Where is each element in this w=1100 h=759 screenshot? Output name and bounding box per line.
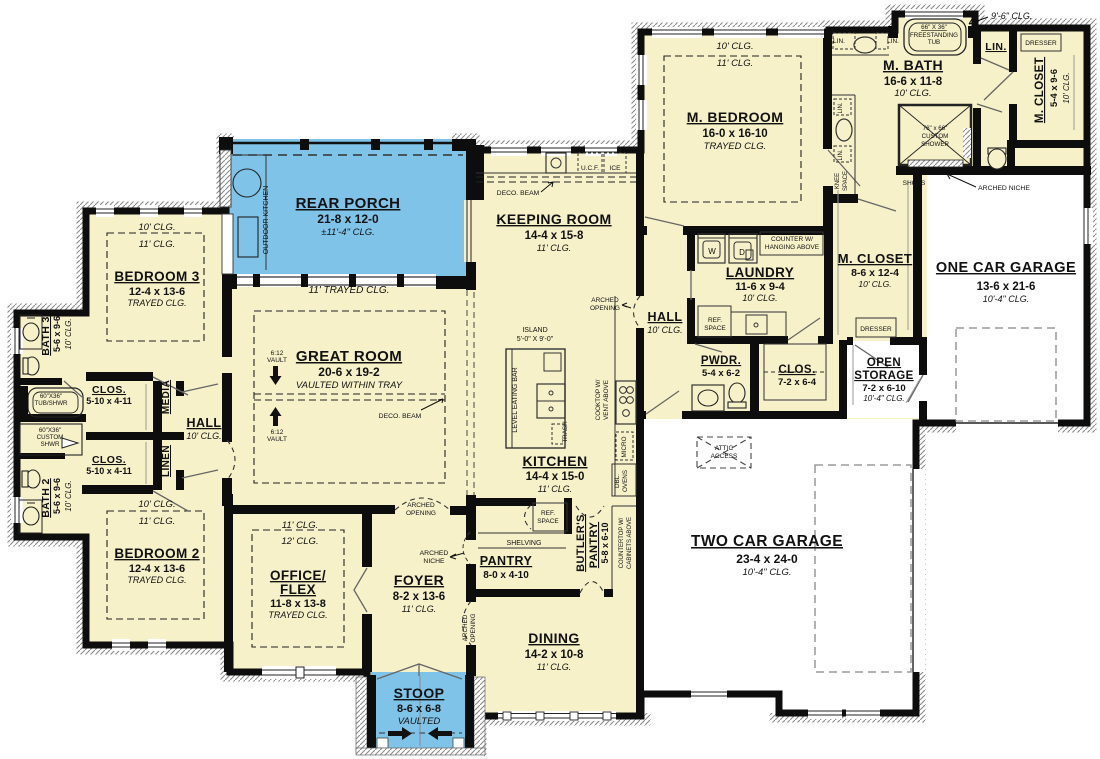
svg-text:14-4 x 15-0: 14-4 x 15-0: [526, 471, 585, 483]
svg-text:SHOWER: SHOWER: [921, 141, 949, 148]
svg-text:11' TRAYED CLG.: 11' TRAYED CLG.: [308, 285, 389, 296]
svg-text:MICRO: MICRO: [621, 436, 628, 457]
svg-text:DBL.: DBL.: [614, 474, 621, 488]
svg-text:6:12: 6:12: [271, 350, 284, 357]
svg-text:60"X36": 60"X36": [40, 393, 62, 400]
svg-text:12-4 x 13-6: 12-4 x 13-6: [129, 563, 185, 575]
svg-text:CUSTOM: CUSTOM: [922, 133, 949, 140]
svg-text:14-4 x 15-8: 14-4 x 15-8: [525, 230, 584, 242]
svg-text:OPEN: OPEN: [867, 357, 901, 369]
svg-text:66" X 36": 66" X 36": [921, 24, 947, 31]
svg-text:8-6 x 6-8: 8-6 x 6-8: [397, 703, 441, 715]
svg-text:KEEPING ROOM: KEEPING ROOM: [496, 211, 611, 227]
svg-text:SHOES: SHOES: [903, 180, 926, 187]
svg-text:7-2 x 6-4: 7-2 x 6-4: [778, 377, 817, 388]
svg-text:ACCESS: ACCESS: [711, 453, 738, 460]
svg-text:CLOS.: CLOS.: [92, 454, 126, 466]
svg-text:5-6 x 9-6: 5-6 x 9-6: [52, 316, 62, 352]
svg-text:5-4 x 6-2: 5-4 x 6-2: [702, 368, 740, 379]
svg-text:HANGING ABOVE: HANGING ABOVE: [765, 244, 820, 251]
svg-text:SPACE: SPACE: [537, 518, 559, 525]
svg-text:DINING: DINING: [528, 630, 579, 646]
svg-text:BATH 2: BATH 2: [40, 478, 52, 518]
svg-text:21-8 x 12-0: 21-8 x 12-0: [317, 212, 379, 226]
svg-text:SPACE: SPACE: [704, 325, 726, 332]
svg-text:8-6 x 12-4: 8-6 x 12-4: [851, 267, 899, 279]
svg-text:LIN.: LIN.: [838, 102, 844, 113]
svg-text:SHELVING: SHELVING: [507, 540, 542, 547]
svg-text:REF.: REF.: [541, 510, 555, 517]
svg-text:ARCHED: ARCHED: [420, 550, 449, 557]
svg-text:14-2 x 10-8: 14-2 x 10-8: [525, 649, 584, 661]
svg-text:10'-4" CLG.: 10'-4" CLG.: [983, 294, 1029, 304]
svg-text:LAUNDRY: LAUNDRY: [726, 265, 794, 280]
svg-text:8-2 x 13-6: 8-2 x 13-6: [393, 591, 445, 603]
svg-text:10' CLG.: 10' CLG.: [138, 499, 175, 510]
svg-text:VAULTED WITHIN TRAY: VAULTED WITHIN TRAY: [296, 380, 403, 391]
svg-text:CUSTOM: CUSTOM: [37, 434, 64, 441]
svg-text:9'-6" CLG.: 9'-6" CLG.: [991, 11, 1032, 21]
svg-text:COUNTERTOP W/: COUNTERTOP W/: [619, 517, 625, 568]
svg-text:BEDROOM 2: BEDROOM 2: [114, 546, 199, 561]
svg-text:SPACE: SPACE: [843, 171, 849, 191]
svg-text:NICHE: NICHE: [423, 558, 445, 565]
svg-text:D: D: [739, 248, 745, 257]
svg-text:LIN.: LIN.: [985, 41, 1006, 53]
svg-text:REF.: REF.: [708, 317, 722, 324]
svg-text:REAR PORCH: REAR PORCH: [296, 195, 401, 212]
svg-text:11' CLG.: 11' CLG.: [139, 516, 176, 527]
svg-text:KNEE: KNEE: [835, 173, 841, 189]
svg-text:23-4 x 24-0: 23-4 x 24-0: [736, 552, 798, 566]
svg-text:5-10 x 4-11: 5-10 x 4-11: [86, 396, 132, 406]
svg-text:LIN.: LIN.: [887, 38, 899, 45]
svg-text:11' CLG.: 11' CLG.: [139, 239, 176, 250]
svg-text:76" x 66": 76" x 66": [923, 125, 948, 132]
svg-text:SHWR: SHWR: [41, 441, 60, 448]
svg-text:11-6 x 9-4: 11-6 x 9-4: [735, 281, 785, 293]
svg-text:LIN.: LIN.: [838, 149, 844, 160]
svg-text:TRASH: TRASH: [562, 421, 569, 443]
svg-text:TRAYED CLG.: TRAYED CLG.: [268, 610, 327, 620]
svg-text:FREESTANDING: FREESTANDING: [910, 32, 958, 39]
svg-text:20-6 x 19-2: 20-6 x 19-2: [318, 365, 380, 379]
svg-text:PANTRY: PANTRY: [480, 554, 533, 568]
svg-text:PWDR.: PWDR.: [701, 355, 741, 367]
svg-text:10'-4" CLG.: 10'-4" CLG.: [863, 394, 904, 403]
svg-text:MEDIA: MEDIA: [161, 380, 172, 414]
svg-text:FLEX: FLEX: [280, 582, 316, 597]
svg-text:U.C.F.: U.C.F.: [581, 165, 599, 172]
svg-text:CABINETS ABOVE: CABINETS ABOVE: [627, 517, 633, 569]
svg-text:ISLAND: ISLAND: [522, 327, 547, 334]
svg-text:11' CLG.: 11' CLG.: [538, 484, 573, 494]
svg-text:OPENING: OPENING: [590, 305, 620, 312]
svg-text:8-0 x 4-10: 8-0 x 4-10: [483, 570, 529, 581]
svg-text:OFFICE/: OFFICE/: [270, 568, 326, 583]
svg-text:10' CLG.: 10' CLG.: [858, 279, 891, 289]
svg-text:M. BATH: M. BATH: [883, 57, 943, 73]
svg-text:KITCHEN: KITCHEN: [522, 453, 587, 469]
svg-text:10' CLG.: 10' CLG.: [1062, 72, 1071, 103]
svg-text:16-6 x 11-8: 16-6 x 11-8: [884, 76, 943, 88]
svg-text:PANTRY: PANTRY: [588, 522, 600, 569]
svg-text:10' CLG.: 10' CLG.: [186, 431, 221, 441]
svg-text:10' CLG.: 10' CLG.: [647, 325, 682, 335]
svg-text:ARCHED: ARCHED: [407, 502, 435, 509]
svg-text:ARCHED: ARCHED: [591, 297, 619, 304]
svg-text:5-6 x 9-6: 5-6 x 9-6: [52, 478, 62, 514]
svg-text:5-10 x 4-11: 5-10 x 4-11: [86, 466, 132, 476]
svg-text:DECO. BEAM: DECO. BEAM: [379, 413, 422, 420]
svg-text:11' CLG.: 11' CLG.: [717, 58, 754, 69]
svg-text:12-4 x 13-6: 12-4 x 13-6: [129, 286, 185, 298]
svg-text:TWO CAR GARAGE: TWO CAR GARAGE: [691, 533, 843, 550]
svg-text:FOYER: FOYER: [394, 572, 444, 588]
svg-text:COOKTOP W/: COOKTOP W/: [595, 379, 602, 420]
svg-text:OUTDOOR KITCHEN: OUTDOOR KITCHEN: [263, 186, 270, 254]
svg-text:5-4 x 9-6: 5-4 x 9-6: [1049, 69, 1060, 107]
svg-text:10' CLG.: 10' CLG.: [742, 293, 777, 303]
svg-text:M. CLOSET: M. CLOSET: [838, 251, 912, 266]
svg-text:ARCHED NICHE: ARCHED NICHE: [978, 185, 1030, 192]
svg-text:6:12: 6:12: [271, 429, 284, 436]
svg-text:STOOP: STOOP: [394, 685, 445, 701]
svg-text:DRESSER: DRESSER: [860, 326, 892, 333]
svg-text:13-6 x 21-6: 13-6 x 21-6: [977, 281, 1036, 293]
svg-text:±11'-4" CLG.: ±11'-4" CLG.: [321, 227, 375, 238]
svg-text:LINEN: LINEN: [161, 445, 172, 477]
svg-text:TRAYED CLG.: TRAYED CLG.: [127, 575, 186, 585]
svg-text:11' CLG.: 11' CLG.: [282, 520, 319, 531]
svg-text:CLOS.: CLOS.: [92, 384, 126, 396]
svg-text:VAULT: VAULT: [267, 357, 287, 364]
svg-text:10' CLG.: 10' CLG.: [64, 480, 73, 511]
svg-text:10' CLG.: 10' CLG.: [716, 41, 753, 52]
svg-text:W: W: [708, 247, 716, 256]
svg-text:DECO. BEAM: DECO. BEAM: [497, 190, 540, 197]
svg-text:11-8 x 13-8: 11-8 x 13-8: [270, 598, 326, 610]
svg-text:10' CLG.: 10' CLG.: [894, 88, 931, 99]
svg-text:16-0 x 16-10: 16-0 x 16-10: [702, 128, 767, 140]
svg-text:10' CLG.: 10' CLG.: [138, 222, 175, 233]
svg-text:TRAYED CLG.: TRAYED CLG.: [127, 298, 186, 308]
svg-text:TUB/SHWR: TUB/SHWR: [35, 400, 69, 407]
svg-text:TUB: TUB: [928, 39, 940, 46]
svg-text:7-2 x 6-10: 7-2 x 6-10: [862, 383, 905, 394]
svg-text:ONE CAR GARAGE: ONE CAR GARAGE: [936, 260, 1076, 276]
svg-text:GREAT ROOM: GREAT ROOM: [296, 348, 402, 365]
svg-text:STORAGE: STORAGE: [854, 370, 913, 382]
svg-text:HALL: HALL: [187, 416, 222, 430]
svg-text:BEDROOM 3: BEDROOM 3: [114, 269, 199, 284]
svg-text:11' CLG.: 11' CLG.: [537, 243, 572, 253]
svg-text:TRAYED CLG.: TRAYED CLG.: [704, 141, 767, 152]
svg-text:5'-0" X 9'-0": 5'-0" X 9'-0": [517, 336, 554, 343]
svg-text:ATTIC: ATTIC: [715, 445, 734, 452]
svg-text:60"X36": 60"X36": [39, 427, 61, 434]
svg-text:LEVEL EATING BAR: LEVEL EATING BAR: [512, 367, 519, 432]
svg-text:VENT ABOVE: VENT ABOVE: [603, 380, 610, 420]
svg-text:DRESSER: DRESSER: [1025, 40, 1057, 47]
svg-text:11' CLG.: 11' CLG.: [537, 662, 572, 672]
svg-text:HALL: HALL: [648, 310, 683, 324]
svg-text:ICE: ICE: [610, 165, 622, 172]
svg-text:VAULTED: VAULTED: [398, 716, 441, 727]
svg-text:ARCHED: ARCHED: [462, 614, 469, 641]
svg-text:OPENING: OPENING: [406, 510, 436, 517]
svg-text:VAULT: VAULT: [267, 436, 287, 443]
svg-text:10' CLG.: 10' CLG.: [64, 318, 73, 349]
svg-text:BATH 3: BATH 3: [40, 316, 52, 356]
svg-text:LIN.: LIN.: [833, 38, 845, 45]
svg-text:OVENS: OVENS: [622, 470, 629, 492]
svg-text:BUTLER'S: BUTLER'S: [575, 514, 587, 572]
svg-text:COUNTER W/: COUNTER W/: [771, 236, 813, 243]
svg-text:CLOS.: CLOS.: [778, 364, 815, 376]
svg-text:5-8 x 6-10: 5-8 x 6-10: [600, 522, 610, 563]
svg-text:OPENING: OPENING: [470, 613, 477, 642]
svg-text:M. BEDROOM: M. BEDROOM: [687, 109, 784, 125]
svg-text:10'-4" CLG.: 10'-4" CLG.: [742, 567, 791, 578]
svg-text:11' CLG.: 11' CLG.: [402, 604, 437, 614]
svg-text:M. CLOSET: M. CLOSET: [1034, 57, 1046, 123]
svg-text:12' CLG.: 12' CLG.: [281, 536, 318, 547]
